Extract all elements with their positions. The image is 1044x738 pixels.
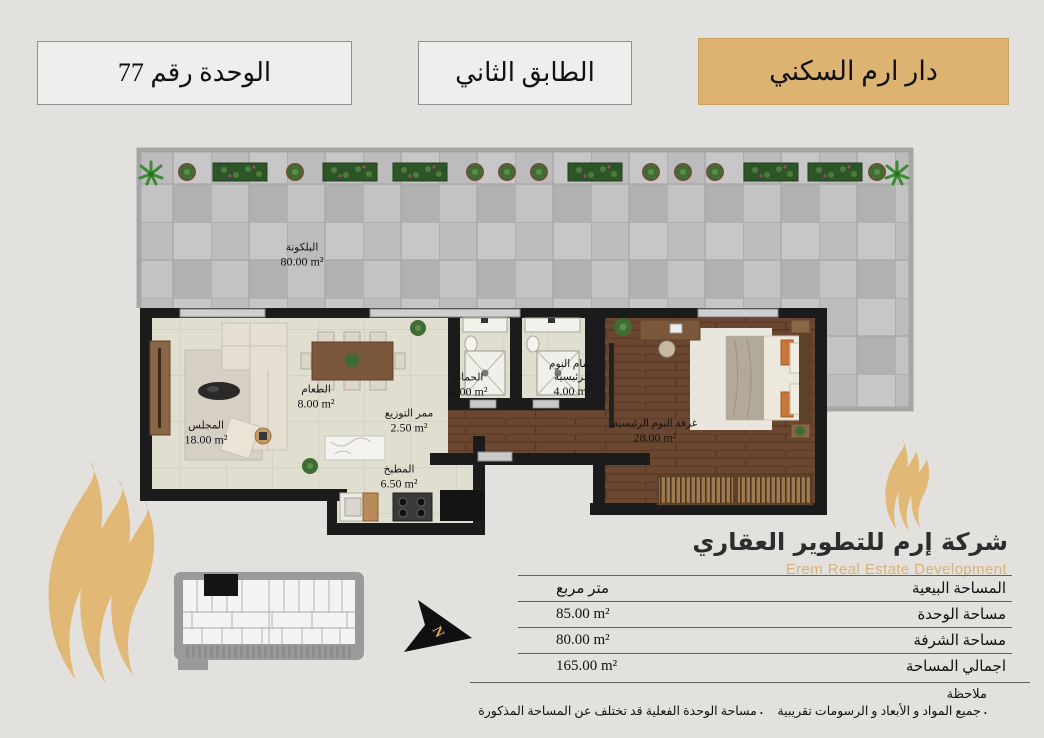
room-area: 6.50 m² bbox=[381, 477, 418, 493]
room-label-bathroom: الحمام 4.00 m² bbox=[451, 372, 488, 401]
notes-divider bbox=[470, 682, 1030, 683]
room-area: 80.00 m² bbox=[281, 255, 324, 271]
room-label-corridor: ممر التوزيع 2.50 m² bbox=[385, 408, 433, 437]
room-label-kitchen: المطبخ 6.50 m² bbox=[381, 464, 418, 493]
row-label: مساحة الوحدة bbox=[917, 605, 1006, 624]
row-label: مساحة الشرفة bbox=[913, 631, 1006, 650]
room-area: 8.00 m² bbox=[298, 397, 335, 413]
room-area: 18.00 m² bbox=[185, 433, 228, 449]
room-name: ممر التوزيع bbox=[385, 408, 433, 421]
note-bullet: . bbox=[984, 703, 987, 719]
area-table: المساحة البيعية متر مربع مساحة الوحدة 85… bbox=[518, 575, 1012, 679]
table-header-value: متر مربع bbox=[518, 579, 609, 598]
room-area: 2.50 m² bbox=[385, 421, 433, 437]
company-name-arabic: شركة إرم للتطوير العقاري bbox=[692, 528, 1008, 556]
project-name-label: دار ارم السكني bbox=[769, 56, 938, 87]
note-bullet: . bbox=[760, 703, 763, 719]
balcony-right-wing bbox=[823, 306, 913, 411]
floor-name-label: الطابق الثاني bbox=[455, 58, 595, 88]
room-name: غرفة النوم الرئيسية bbox=[613, 418, 698, 431]
room-label-master-bath: حمام النوم الرئيسية 4.00 m² bbox=[540, 358, 604, 400]
room-area: 28.00 m² bbox=[613, 431, 698, 447]
room-name: البلكونة bbox=[281, 242, 324, 255]
building-locator-map bbox=[172, 570, 368, 674]
notes-title: ملاحظة bbox=[947, 686, 987, 702]
unit-number-box: الوحدة رقم 77 bbox=[37, 41, 352, 105]
brand-flame-logo-small bbox=[880, 437, 938, 532]
north-arrow: N bbox=[398, 592, 476, 656]
unit-number-label: الوحدة رقم 77 bbox=[118, 58, 271, 88]
room-label-master-bedroom: غرفة النوم الرئيسية 28.00 m² bbox=[613, 418, 698, 447]
table-row: اجمالي المساحة 165.00 m² bbox=[518, 653, 1012, 679]
row-value: 85.00 m² bbox=[518, 606, 610, 623]
room-name: الحمام bbox=[451, 372, 488, 385]
note-text: مساحة الوحدة الفعلية قد تختلف عن المساحة… bbox=[478, 703, 757, 719]
note-text: جميع المواد و الأبعاد و الرسومات تقريبية bbox=[777, 703, 981, 719]
room-name: حمام النوم الرئيسية bbox=[540, 358, 604, 384]
table-row: مساحة الوحدة 85.00 m² bbox=[518, 601, 1012, 627]
floor-name-box: الطابق الثاني bbox=[418, 41, 632, 105]
floorplan-sheet: { "colors": { "accent": "#dcb371", "gold… bbox=[0, 0, 1044, 738]
table-row: مساحة الشرفة 80.00 m² bbox=[518, 627, 1012, 653]
room-area: 4.00 m² bbox=[451, 385, 488, 401]
room-name: الطعام bbox=[298, 384, 335, 397]
row-value: 80.00 m² bbox=[518, 632, 610, 649]
row-label: اجمالي المساحة bbox=[906, 657, 1006, 676]
area-table-header-row: المساحة البيعية متر مربع bbox=[518, 575, 1012, 601]
note-item: . مساحة الوحدة الفعلية قد تختلف عن المسا… bbox=[478, 703, 763, 719]
room-name: المجلس bbox=[185, 420, 228, 433]
room-label-majlis: المجلس 18.00 m² bbox=[185, 420, 228, 449]
room-label-dining: الطعام 8.00 m² bbox=[298, 384, 335, 413]
room-label-balcony: البلكونة 80.00 m² bbox=[281, 242, 324, 271]
entry-hall-floor bbox=[448, 410, 605, 456]
highlighted-unit bbox=[204, 574, 238, 596]
table-header-label: المساحة البيعية bbox=[912, 579, 1006, 598]
note-item: . جميع المواد و الأبعاد و الرسومات تقريب… bbox=[777, 703, 987, 719]
project-name-box: دار ارم السكني bbox=[698, 38, 1009, 105]
room-name: المطبخ bbox=[381, 464, 418, 477]
floor-plan-drawing bbox=[135, 146, 915, 538]
room-area: 4.00 m² bbox=[540, 384, 604, 400]
row-value: 165.00 m² bbox=[518, 658, 617, 675]
brand-flame-logo-large bbox=[38, 448, 173, 693]
